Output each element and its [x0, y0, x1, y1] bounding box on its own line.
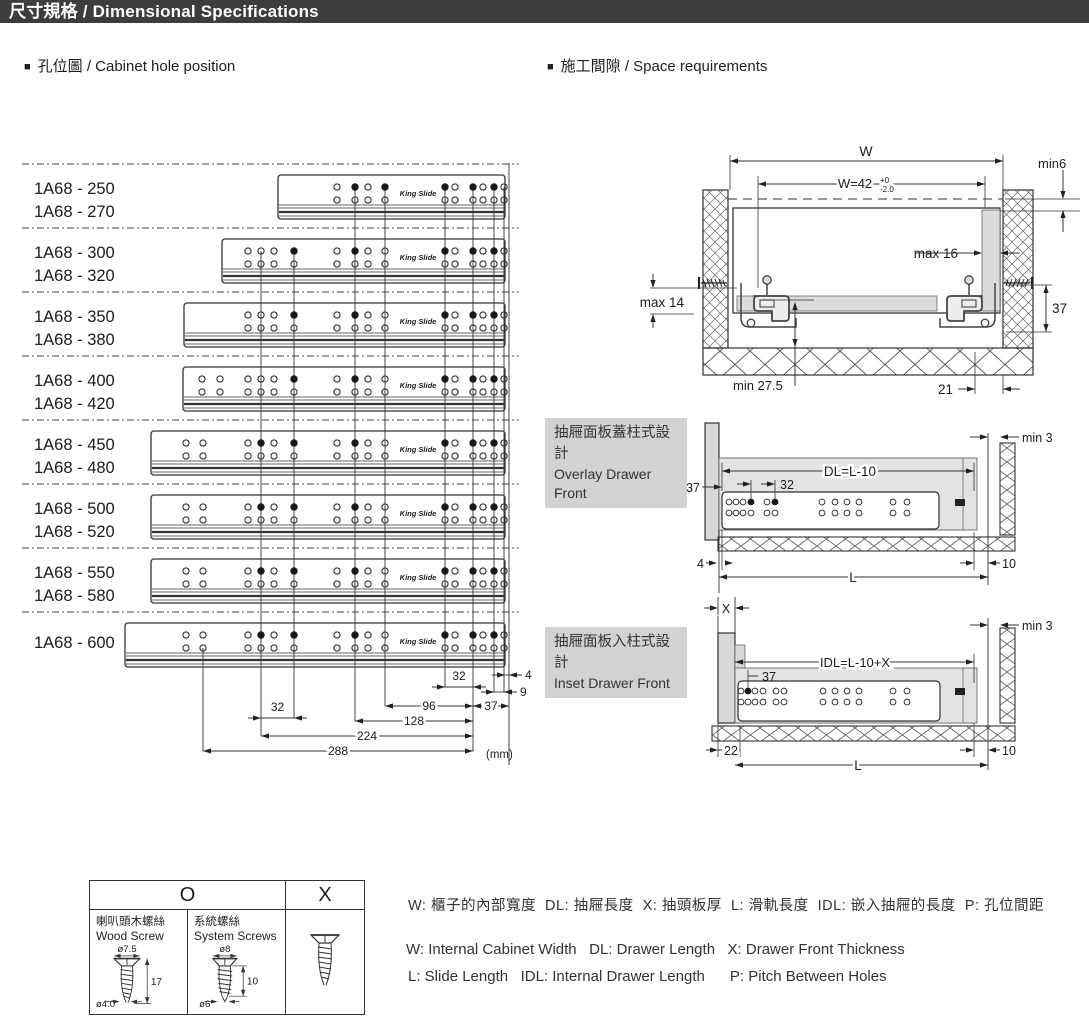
- cabinet-hole-position-diagram: King Slide1A68 - 2501A68 - 270King Slide…: [0, 140, 545, 800]
- legend-chinese: W: 櫃子的內部寬度 DL: 抽屜長度 X: 抽頭板厚 L: 滑軌長度 IDL:…: [408, 894, 1044, 915]
- svg-text:1A68 - 350: 1A68 - 350: [34, 308, 115, 326]
- left-wall-hatch: [703, 190, 728, 348]
- svg-text:32: 32: [271, 700, 285, 714]
- svg-text:1A68 - 600: 1A68 - 600: [34, 634, 115, 652]
- screw-icon: [290, 921, 360, 999]
- svg-text:1A68 - 400: 1A68 - 400: [34, 372, 115, 390]
- legend-english-line2: L: Slide Length IDL: Internal Drawer Len…: [408, 968, 887, 985]
- king-slide-logo: King Slide: [400, 573, 437, 582]
- drawer-side-board: [982, 210, 1000, 311]
- page-title: 尺寸規格 / Dimensional Specifications: [0, 0, 1089, 23]
- svg-text:1A68 - 550: 1A68 - 550: [34, 564, 115, 582]
- svg-text:1A68 - 500: 1A68 - 500: [34, 500, 115, 518]
- svg-text:224: 224: [357, 729, 377, 743]
- dim-32-pitch: 32: [780, 478, 794, 492]
- king-slide-logo: King Slide: [400, 317, 437, 326]
- legend-english-line1: W: Internal Cabinet Width DL: Drawer Len…: [406, 941, 905, 958]
- dim-37: 37: [1052, 301, 1067, 316]
- cabinet-back-wall-hatch: [1000, 443, 1015, 535]
- screw-table-header-o: O: [90, 881, 286, 910]
- dim-w42-tolerance-upper: +0: [880, 176, 890, 185]
- svg-text:1A68 - 380: 1A68 - 380: [34, 331, 115, 349]
- svg-text:1A68 - 580: 1A68 - 580: [34, 587, 115, 605]
- dim-21: 21: [938, 382, 953, 397]
- dim-min3: min 3: [1022, 431, 1053, 445]
- svg-text:32: 32: [452, 669, 466, 683]
- slide-rear-hook: [955, 688, 965, 695]
- svg-text:1A68 - 450: 1A68 - 450: [34, 436, 115, 454]
- cabinet-bottom-hatch: [712, 726, 1015, 741]
- wood-screw-icon: ø7.5 17 ø4.0: [90, 943, 186, 1009]
- dim-l: L: [849, 570, 857, 585]
- dim-l: L: [854, 758, 862, 773]
- no-screw-cell: [286, 910, 365, 1015]
- svg-text:ø4.0: ø4.0: [96, 999, 115, 1009]
- cabinet-floor-hatch: [703, 348, 1033, 375]
- front-bracket: [735, 645, 745, 671]
- dim-w42: W=42: [838, 176, 872, 191]
- king-slide-logo: King Slide: [400, 381, 437, 390]
- drawer-front-panel: [718, 633, 735, 723]
- screw-type-table: O X 喇叭頭木螺絲 Wood Screw ø7.5 17: [89, 880, 365, 1015]
- svg-text:1A68 - 480: 1A68 - 480: [34, 459, 115, 477]
- dim-37-front: 37: [762, 670, 776, 684]
- dim-22: 22: [724, 744, 738, 758]
- dim-idl: IDL=L-10+X: [820, 655, 890, 670]
- spec-sheet-page: { "header": {"title": "尺寸規格 / Dimensiona…: [0, 0, 1089, 1025]
- svg-text:1A68 - 420: 1A68 - 420: [34, 395, 115, 413]
- king-slide-logo: King Slide: [400, 637, 437, 646]
- right-wall-hatch: [1003, 190, 1033, 348]
- svg-text:ø7.5: ø7.5: [117, 944, 136, 955]
- svg-text:ø8: ø8: [219, 944, 230, 955]
- section-heading-space-requirements: ■施工間隙 / Space requirements: [547, 55, 767, 76]
- square-bullet-icon: ■: [24, 61, 31, 73]
- king-slide-logo: King Slide: [400, 253, 437, 262]
- drawer-front-panel: [705, 423, 719, 540]
- cabinet-back-wall-hatch: [1000, 628, 1015, 723]
- svg-text:288: 288: [328, 744, 348, 758]
- inset-drawer-front-diagram: X IDL=L-10+X 37 min 3 22 10: [704, 597, 1053, 773]
- dim-dl: DL=L-10: [824, 464, 876, 479]
- dim-min3: min 3: [1022, 619, 1053, 633]
- svg-text:37: 37: [484, 699, 498, 713]
- dim-10: 10: [1002, 557, 1016, 571]
- svg-text:4: 4: [525, 668, 532, 682]
- system-screw-icon: ø8 10 ø6: [188, 943, 280, 1009]
- dim-w: W: [859, 143, 873, 159]
- svg-text:1A68 - 270: 1A68 - 270: [34, 203, 115, 221]
- svg-text:96: 96: [422, 699, 436, 713]
- svg-text:128: 128: [404, 714, 424, 728]
- svg-text:1A68 - 520: 1A68 - 520: [34, 523, 115, 541]
- svg-text:(mm): (mm): [486, 749, 513, 761]
- overlay-drawer-front-label: 抽屜面板蓋柱式設計 Overlay Drawer Front: [545, 418, 687, 508]
- dim-x: X: [722, 602, 731, 616]
- king-slide-logo: King Slide: [400, 509, 437, 518]
- dim-4: 4: [697, 557, 704, 571]
- cabinet-cross-section: W W=42 +0 -2.0 min6 max 16 max 14 37 min…: [640, 143, 1080, 397]
- svg-text:1A68 - 320: 1A68 - 320: [34, 267, 115, 285]
- svg-text:1A68 - 250: 1A68 - 250: [34, 180, 115, 198]
- king-slide-logo: King Slide: [400, 445, 437, 454]
- system-screw-cell: 系統螺絲 System Screws ø8 10 ø6: [188, 910, 286, 1015]
- svg-text:9: 9: [520, 685, 527, 699]
- dim-min27-5: min 27.5: [733, 378, 783, 393]
- wood-screw-cell: 喇叭頭木螺絲 Wood Screw ø7.5 17 ø4.0: [90, 910, 188, 1015]
- overlay-drawer-front-diagram: DL=L-10 37 32 min 3 4 10 L: [686, 423, 1053, 593]
- svg-text:17: 17: [151, 977, 163, 988]
- svg-text:ø6: ø6: [199, 999, 210, 1009]
- king-slide-logo: King Slide: [400, 189, 437, 198]
- svg-text:10: 10: [247, 976, 259, 987]
- slide-rear-hook: [955, 499, 965, 506]
- section-heading-hole-position: ■孔位圖 / Cabinet hole position: [24, 55, 235, 76]
- inset-drawer-front-label: 抽屜面板入柱式設計 Inset Drawer Front: [545, 627, 687, 698]
- dim-10: 10: [1002, 744, 1016, 758]
- cabinet-bottom-hatch: [718, 537, 1015, 551]
- dim-37-front: 37: [686, 481, 700, 495]
- dim-min6: min6: [1038, 156, 1066, 171]
- screw-table-header-x: X: [286, 881, 365, 910]
- svg-text:1A68 - 300: 1A68 - 300: [34, 244, 115, 262]
- square-bullet-icon: ■: [547, 61, 554, 73]
- dim-w42-tolerance-lower: -2.0: [880, 185, 894, 194]
- dim-max14: max 14: [640, 295, 685, 310]
